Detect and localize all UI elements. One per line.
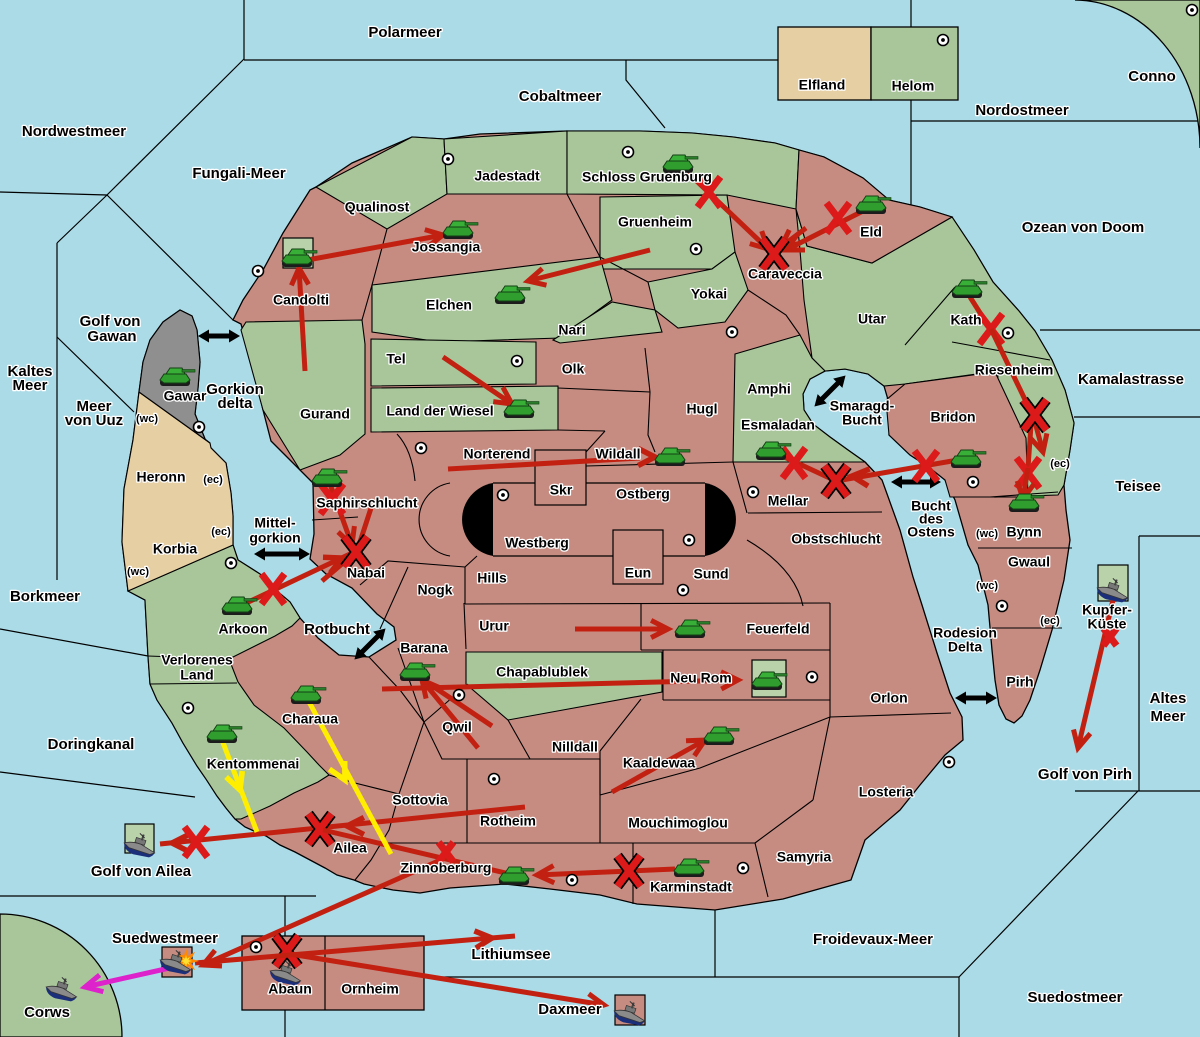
svg-text:Bridon: Bridon [930, 409, 975, 425]
svg-text:Qwil: Qwil [442, 719, 472, 735]
svg-text:Golf von Pirh: Golf von Pirh [1038, 766, 1132, 783]
svg-text:Qualinost: Qualinost [345, 199, 410, 215]
svg-text:Gawan: Gawan [87, 328, 136, 345]
svg-text:Nogk: Nogk [418, 582, 453, 598]
svg-text:Suedwestmeer: Suedwestmeer [112, 930, 218, 947]
svg-text:Golf von Ailea: Golf von Ailea [91, 863, 192, 880]
svg-text:gorkion: gorkion [249, 530, 300, 546]
svg-text:Charaua: Charaua [282, 711, 338, 727]
svg-text:Saphirschlucht: Saphirschlucht [316, 495, 417, 511]
svg-text:Meer: Meer [1150, 708, 1185, 725]
svg-text:Teisee: Teisee [1115, 478, 1161, 495]
svg-text:Nari: Nari [558, 322, 585, 338]
svg-text:Corws: Corws [24, 1004, 70, 1021]
svg-text:Nabai: Nabai [347, 565, 385, 581]
svg-text:Korbia: Korbia [153, 541, 198, 557]
svg-text:Küste: Küste [1088, 616, 1127, 632]
svg-text:delta: delta [217, 395, 253, 412]
svg-text:Gurand: Gurand [300, 406, 350, 422]
svg-text:(ec): (ec) [1050, 458, 1070, 470]
svg-text:Elfland: Elfland [799, 77, 846, 93]
svg-text:Lithiumsee: Lithiumsee [471, 946, 550, 963]
svg-text:Schloss Gruenburg: Schloss Gruenburg [582, 169, 712, 185]
svg-text:(wc): (wc) [136, 413, 158, 425]
svg-text:Doringkanal: Doringkanal [48, 736, 135, 753]
svg-text:Candolti: Candolti [273, 292, 329, 308]
svg-text:(ec): (ec) [1040, 615, 1060, 627]
svg-text:Ornheim: Ornheim [341, 981, 399, 997]
svg-text:Chapablublek: Chapablublek [496, 664, 588, 680]
svg-text:Helom: Helom [892, 78, 935, 94]
svg-text:Ostberg: Ostberg [616, 486, 670, 502]
svg-text:Wildall: Wildall [596, 446, 641, 462]
svg-text:Sund: Sund [694, 566, 729, 582]
svg-text:Eld: Eld [860, 224, 882, 240]
svg-text:Conno: Conno [1128, 68, 1175, 85]
svg-text:Norterend: Norterend [464, 446, 531, 462]
svg-text:Rotbucht: Rotbucht [304, 621, 370, 638]
svg-text:(wc): (wc) [976, 528, 998, 540]
svg-text:Feuerfeld: Feuerfeld [746, 621, 809, 637]
svg-text:Bucht: Bucht [842, 412, 882, 428]
svg-text:Hills: Hills [477, 570, 507, 586]
svg-text:Froidevaux-Meer: Froidevaux-Meer [813, 931, 933, 948]
svg-text:Nordostmeer: Nordostmeer [975, 102, 1069, 119]
svg-text:Amphi: Amphi [747, 381, 791, 397]
svg-text:(ec): (ec) [211, 526, 231, 538]
svg-text:Meer: Meer [12, 377, 47, 394]
svg-text:Mouchimoglou: Mouchimoglou [628, 815, 728, 831]
svg-text:Abaun: Abaun [268, 981, 312, 997]
svg-text:Elchen: Elchen [426, 297, 472, 313]
svg-text:Altes: Altes [1150, 690, 1187, 707]
svg-text:Cobaltmeer: Cobaltmeer [519, 88, 602, 105]
svg-text:Land: Land [180, 667, 213, 683]
svg-text:Suedostmeer: Suedostmeer [1027, 989, 1122, 1006]
svg-text:Gawar: Gawar [164, 388, 207, 404]
svg-text:von Uuz: von Uuz [65, 412, 123, 429]
svg-text:Ozean von Doom: Ozean von Doom [1022, 219, 1145, 236]
svg-text:Polarmeer: Polarmeer [368, 24, 442, 41]
svg-text:Kath: Kath [950, 312, 981, 328]
svg-text:Esmaladan: Esmaladan [741, 417, 815, 433]
svg-text:Yokai: Yokai [691, 286, 727, 302]
svg-text:Orlon: Orlon [870, 690, 907, 706]
svg-text:Mittel-: Mittel- [254, 515, 296, 531]
svg-text:Zinnoberburg: Zinnoberburg [401, 860, 492, 876]
svg-text:Samyria: Samyria [777, 849, 832, 865]
svg-text:Borkmeer: Borkmeer [10, 588, 80, 605]
svg-text:Fungali-Meer: Fungali-Meer [192, 165, 286, 182]
svg-text:Heronn: Heronn [137, 469, 186, 485]
svg-text:Jossangia: Jossangia [412, 239, 481, 255]
svg-text:Arkoon: Arkoon [219, 621, 268, 637]
svg-text:Hugl: Hugl [686, 401, 717, 417]
svg-text:Losteria: Losteria [859, 784, 914, 800]
svg-text:Nilldall: Nilldall [552, 739, 598, 755]
svg-text:Jadestadt: Jadestadt [474, 168, 540, 184]
svg-text:Sottovia: Sottovia [392, 792, 447, 808]
svg-text:Olk: Olk [562, 361, 585, 377]
svg-text:Verlorenes: Verlorenes [161, 652, 233, 668]
svg-text:Mellar: Mellar [768, 493, 809, 509]
svg-text:(ec): (ec) [203, 474, 223, 486]
svg-text:Gruenheim: Gruenheim [618, 214, 692, 230]
svg-text:Pirh: Pirh [1006, 674, 1033, 690]
svg-text:Gwaul: Gwaul [1008, 554, 1050, 570]
svg-text:Urur: Urur [479, 618, 509, 634]
svg-text:Kentommenai: Kentommenai [207, 756, 300, 772]
svg-text:Daxmeer: Daxmeer [538, 1001, 602, 1018]
svg-text:Obstschlucht: Obstschlucht [791, 531, 881, 547]
svg-text:Kaaldewaa: Kaaldewaa [623, 755, 696, 771]
svg-text:Westberg: Westberg [505, 535, 569, 551]
svg-text:Nordwestmeer: Nordwestmeer [22, 123, 126, 140]
svg-text:Eun: Eun [625, 565, 651, 581]
svg-text:Caraveccia: Caraveccia [748, 266, 822, 282]
svg-text:Ailea: Ailea [333, 840, 367, 856]
svg-text:Neu Rom: Neu Rom [670, 670, 731, 686]
svg-text:Tel: Tel [386, 351, 405, 367]
svg-text:Skr: Skr [550, 482, 573, 498]
svg-text:Bynn: Bynn [1007, 524, 1042, 540]
svg-text:(wc): (wc) [127, 566, 149, 578]
svg-text:Karminstadt: Karminstadt [650, 879, 732, 895]
svg-text:Kamalastrasse: Kamalastrasse [1078, 371, 1184, 388]
svg-text:Barana: Barana [400, 640, 448, 656]
svg-text:Land der Wiesel: Land der Wiesel [386, 403, 493, 419]
svg-text:Riesenheim: Riesenheim [975, 362, 1054, 378]
svg-text:(wc): (wc) [976, 580, 998, 592]
svg-text:Utar: Utar [858, 311, 887, 327]
svg-text:Ostens: Ostens [907, 524, 955, 540]
svg-text:Delta: Delta [948, 639, 982, 655]
svg-text:Rotheim: Rotheim [480, 813, 536, 829]
